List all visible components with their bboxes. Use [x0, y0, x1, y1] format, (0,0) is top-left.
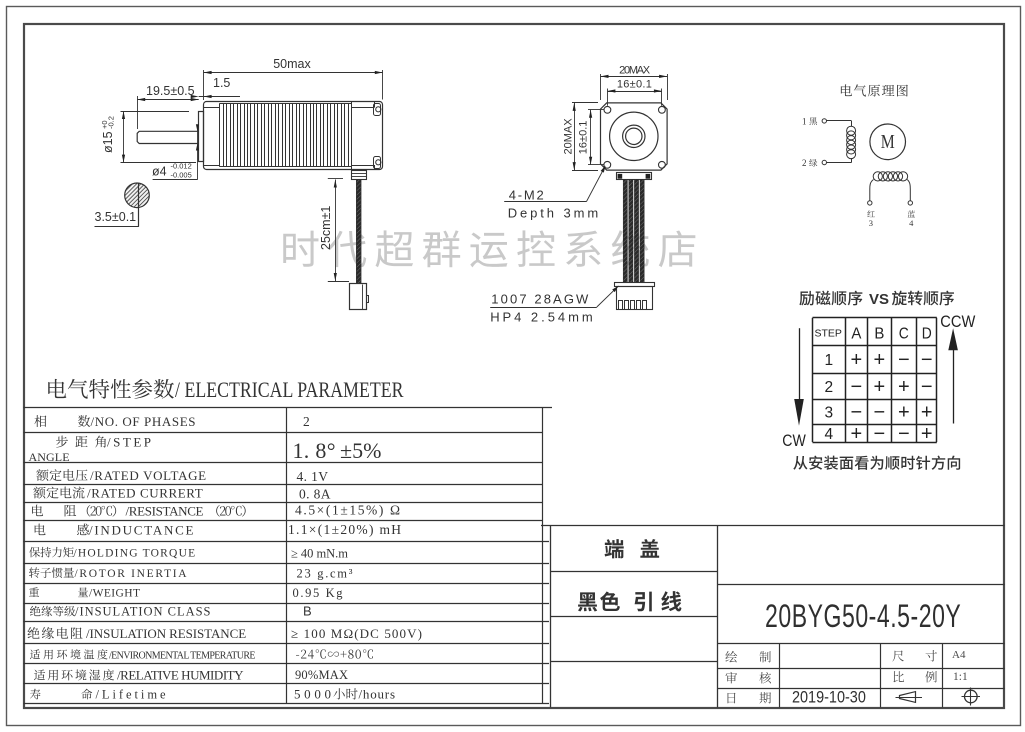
svg-text:−: −: [874, 423, 886, 445]
svg-text:M: M: [881, 131, 895, 153]
svg-text:STEP: STEP: [815, 328, 842, 340]
svg-text:23 g.cm³: 23 g.cm³: [297, 567, 355, 581]
svg-text:−: −: [898, 423, 910, 445]
svg-text:25cm±1: 25cm±1: [319, 206, 333, 250]
svg-text:B: B: [303, 604, 312, 619]
svg-text:B: B: [874, 326, 884, 343]
svg-text:4. 1V: 4. 1V: [297, 469, 329, 484]
svg-text:5000: 5000: [294, 687, 335, 702]
svg-text:/ROTOR INERTIA: /ROTOR INERTIA: [75, 568, 189, 580]
svg-text:/INSULATION CLASS: /INSULATION CLASS: [75, 605, 211, 619]
svg-text:-0.2: -0.2: [107, 116, 116, 129]
svg-text:1: 1: [824, 352, 833, 369]
svg-text:/ ELECTRICAL PARAMETER: / ELECTRICAL PARAMETER: [175, 378, 404, 402]
svg-text:3.5±0.1: 3.5±0.1: [95, 210, 137, 224]
svg-text:/RATED VOLTAGE: /RATED VOLTAGE: [90, 468, 207, 483]
svg-text:+: +: [898, 376, 910, 398]
svg-text:4: 4: [909, 218, 914, 228]
svg-text:D: D: [922, 326, 932, 343]
svg-text:ø4: ø4: [152, 165, 167, 179]
svg-text:16±0.1: 16±0.1: [617, 79, 652, 91]
svg-text:+: +: [874, 376, 886, 398]
svg-text:20MAX: 20MAX: [563, 118, 575, 155]
svg-text:1.5: 1.5: [213, 76, 230, 90]
svg-text:/NO. OF PHASES: /NO. OF PHASES: [91, 414, 197, 429]
svg-text:−: −: [851, 401, 863, 423]
svg-text:/RATED CURRERT: /RATED CURRERT: [87, 486, 203, 501]
svg-text:3: 3: [869, 218, 873, 228]
svg-text:+: +: [874, 349, 886, 371]
svg-text:/RESISTANCE: /RESISTANCE: [126, 504, 204, 519]
svg-text:−: −: [921, 376, 933, 398]
svg-text:CW: CW: [782, 431, 806, 450]
svg-text:-0.005: -0.005: [171, 171, 192, 180]
svg-text:−: −: [898, 349, 910, 371]
svg-text:/WEIGHT: /WEIGHT: [89, 588, 140, 600]
svg-text:/ENVIRONMENTAL TEMPERATURE: /ENVIRONMENTAL TEMPERATURE: [109, 651, 255, 662]
svg-text:2: 2: [303, 414, 310, 429]
svg-text:0.95 Kg: 0.95 Kg: [293, 586, 345, 600]
svg-text:1.1×(1±20%) mH: 1.1×(1±20%) mH: [288, 522, 402, 537]
svg-text:/INDUCTANCE: /INDUCTANCE: [89, 523, 195, 538]
svg-text:−: −: [874, 401, 886, 423]
svg-text:+: +: [851, 349, 863, 371]
svg-text:−: −: [851, 376, 863, 398]
svg-text:CCW: CCW: [940, 312, 975, 331]
svg-text:/INSULATION RESISTANCE: /INSULATION RESISTANCE: [86, 626, 246, 641]
svg-text:±5%: ±5%: [340, 438, 381, 463]
svg-text:19.5±0.5: 19.5±0.5: [146, 84, 195, 98]
svg-text:20BYG50-4.5-20Y: 20BYG50-4.5-20Y: [765, 598, 961, 634]
svg-text:1:1: 1:1: [953, 671, 968, 683]
svg-text:ø15: ø15: [101, 131, 115, 153]
svg-text:/STEP: /STEP: [107, 435, 154, 450]
svg-text:90%MAX: 90%MAX: [295, 668, 348, 682]
svg-text:HP4 2.54mm: HP4 2.54mm: [490, 310, 595, 325]
svg-text:2019-10-30: 2019-10-30: [792, 688, 866, 706]
svg-text:1007 28AGW: 1007 28AGW: [491, 292, 590, 307]
svg-text:2: 2: [802, 158, 807, 168]
svg-text:-0.012: -0.012: [171, 162, 192, 171]
svg-text:VS: VS: [869, 291, 889, 308]
svg-text:Depth 3mm: Depth 3mm: [508, 206, 601, 221]
svg-text:+: +: [921, 423, 933, 445]
svg-text:/RELATIVE HUMIDITY: /RELATIVE HUMIDITY: [117, 668, 244, 683]
svg-text:ANGLE: ANGLE: [29, 450, 70, 464]
svg-text:3: 3: [824, 404, 833, 421]
svg-text:2: 2: [824, 379, 833, 396]
svg-text:16±0.1: 16±0.1: [578, 121, 590, 155]
svg-text:+: +: [851, 423, 863, 445]
svg-text:1. 8°: 1. 8°: [293, 438, 336, 463]
svg-text:1: 1: [802, 116, 807, 126]
svg-text:/Lifetime: /Lifetime: [96, 688, 169, 702]
svg-text:/HOLDING TORQUE: /HOLDING TORQUE: [74, 548, 197, 560]
svg-text:C: C: [899, 326, 909, 343]
svg-text:20MAX: 20MAX: [619, 65, 651, 77]
svg-text:+: +: [898, 401, 910, 423]
svg-text:4: 4: [824, 426, 833, 443]
svg-text:4.5×(1±15%) Ω: 4.5×(1±15%) Ω: [295, 503, 402, 518]
svg-text:−: −: [921, 349, 933, 371]
svg-text:A: A: [851, 326, 861, 343]
svg-text:50max: 50max: [273, 57, 311, 71]
svg-text:4-M2: 4-M2: [509, 188, 546, 203]
svg-text:/hours: /hours: [359, 687, 396, 702]
svg-text:A4: A4: [952, 649, 966, 661]
svg-text:≥ 100 MΩ(DC 500V): ≥ 100 MΩ(DC 500V): [291, 626, 423, 641]
svg-text:≥ 40 mN.m: ≥ 40 mN.m: [291, 547, 348, 561]
svg-text:+: +: [921, 401, 933, 423]
svg-text:0. 8A: 0. 8A: [299, 487, 331, 502]
